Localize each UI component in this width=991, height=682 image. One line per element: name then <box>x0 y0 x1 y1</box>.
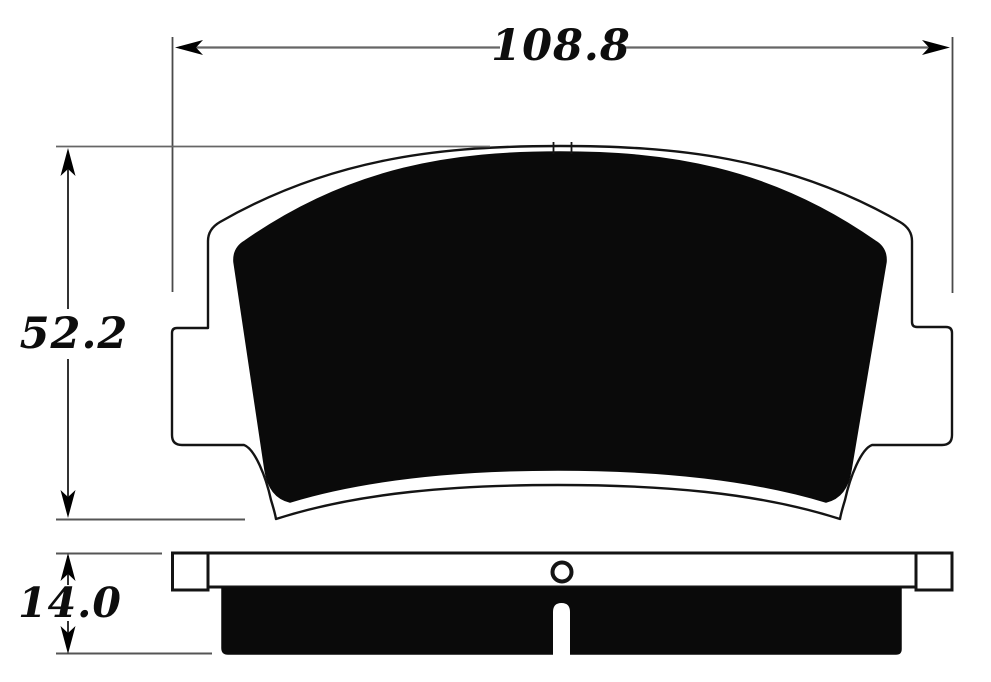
width-value: 108.8 <box>491 21 631 71</box>
side-view <box>173 553 953 656</box>
front-view <box>172 142 952 519</box>
diagram-svg: 108.8 52.2 14.0 <box>0 0 991 682</box>
brake-pad-dimension-diagram: 108.8 52.2 14.0 <box>0 0 991 682</box>
center-slot <box>553 603 570 656</box>
height-value: 52.2 <box>20 309 129 359</box>
rivet-hole <box>553 563 572 582</box>
right-ear-tab-edge <box>916 553 952 590</box>
friction-material <box>234 152 886 502</box>
thickness-value: 14.0 <box>18 579 122 627</box>
left-ear-tab-edge <box>173 553 209 590</box>
